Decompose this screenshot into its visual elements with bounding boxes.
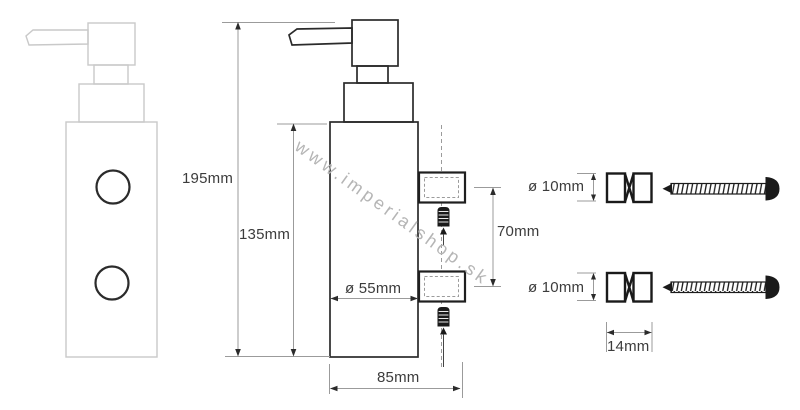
mounting-screw-bottom (663, 276, 780, 299)
side-neck (357, 66, 388, 83)
front-spout (26, 30, 88, 45)
front-view-mounting-holes (96, 171, 130, 300)
wall-peg-bottom (607, 273, 652, 302)
dimension-label-body-diameter: ø 55mm (345, 280, 401, 297)
front-pump-head (88, 23, 135, 65)
side-spout (289, 28, 352, 45)
side-body (330, 122, 418, 357)
side-pump-head (352, 20, 398, 66)
dimension-label-total-height: 195mm (182, 170, 233, 187)
set-screw-bottom (438, 307, 450, 367)
mounting-screw-top (663, 178, 780, 201)
technical-drawing-page: 195mm 135mm ø 55mm 85mm 70mm ø 10mm ø 10… (0, 0, 800, 410)
wall-peg-top (607, 174, 652, 203)
dimension-label-bracket-spacing: 70mm (497, 223, 539, 240)
side-collar (344, 83, 413, 122)
dimension-label-peg-length: 14mm (607, 338, 649, 355)
front-view-outline (26, 23, 157, 357)
front-neck (94, 65, 128, 84)
front-collar (79, 84, 144, 122)
dimension-lines (222, 23, 652, 399)
front-body (66, 122, 157, 357)
dimension-label-body-height: 135mm (239, 226, 290, 243)
mounting-hole-bottom (96, 267, 129, 300)
mounting-hole-top (97, 171, 130, 204)
dimension-label-base-depth: 85mm (377, 369, 419, 386)
dimension-label-peg-diameter-bottom: ø 10mm (528, 279, 584, 296)
dimension-label-peg-diameter-top: ø 10mm (528, 178, 584, 195)
